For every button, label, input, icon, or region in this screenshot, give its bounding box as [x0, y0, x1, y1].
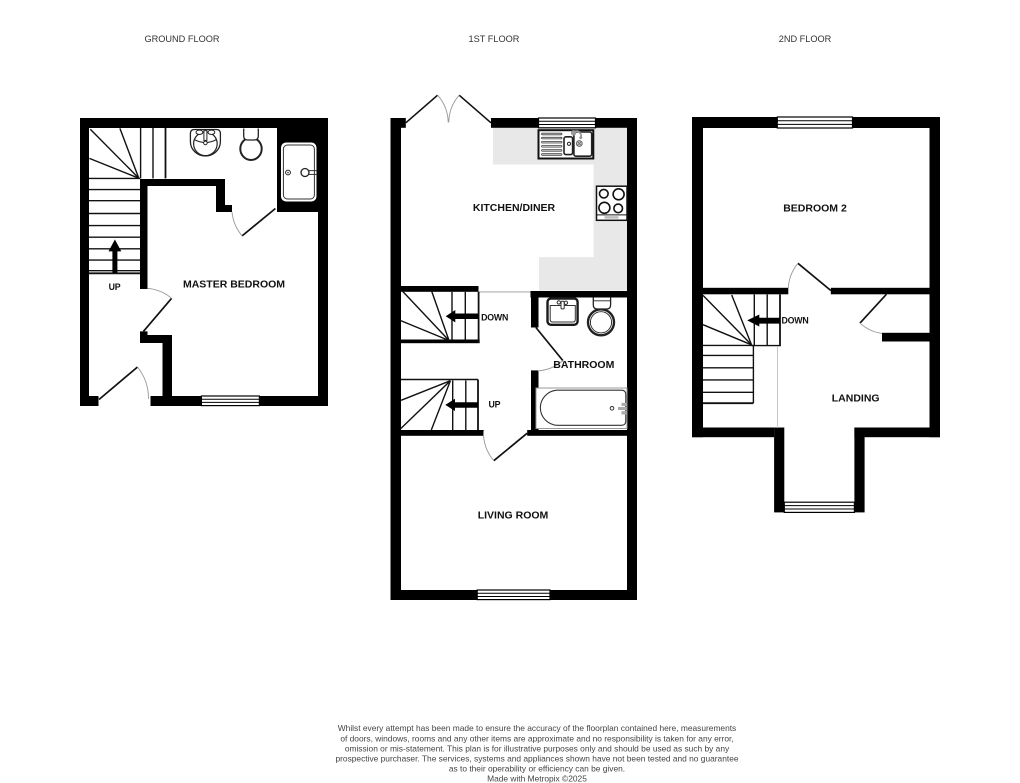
svg-text:MASTER BEDROOM: MASTER BEDROOM	[183, 279, 285, 291]
svg-text:of doors, windows, rooms and a: of doors, windows, rooms and any other i…	[340, 733, 733, 743]
svg-text:DOWN: DOWN	[782, 315, 809, 325]
svg-text:LANDING: LANDING	[832, 392, 880, 404]
svg-text:BATHROOM: BATHROOM	[553, 359, 614, 371]
svg-text:omission or mis-statement. Thi: omission or mis-statement. This plan is …	[345, 743, 730, 753]
svg-text:BEDROOM 2: BEDROOM 2	[783, 202, 847, 214]
svg-text:LIVING ROOM: LIVING ROOM	[478, 509, 549, 521]
svg-text:as to their operability or eff: as to their operability or efficiency ca…	[449, 763, 625, 773]
svg-text:KITCHEN/DINER: KITCHEN/DINER	[473, 202, 556, 214]
svg-text:2ND FLOOR: 2ND FLOOR	[779, 34, 832, 44]
svg-text:prospective purchaser. The ser: prospective purchaser. The services, sys…	[335, 753, 738, 763]
svg-text:1ST FLOOR: 1ST FLOOR	[469, 34, 520, 44]
svg-text:Made with Metropix ©2025: Made with Metropix ©2025	[487, 773, 587, 783]
svg-text:DOWN: DOWN	[481, 312, 508, 322]
svg-text:Whilst every attempt has been: Whilst every attempt has been made to en…	[338, 723, 737, 733]
svg-text:GROUND FLOOR: GROUND FLOOR	[144, 34, 219, 44]
svg-text:UP: UP	[109, 282, 121, 292]
svg-text:UP: UP	[489, 400, 501, 410]
